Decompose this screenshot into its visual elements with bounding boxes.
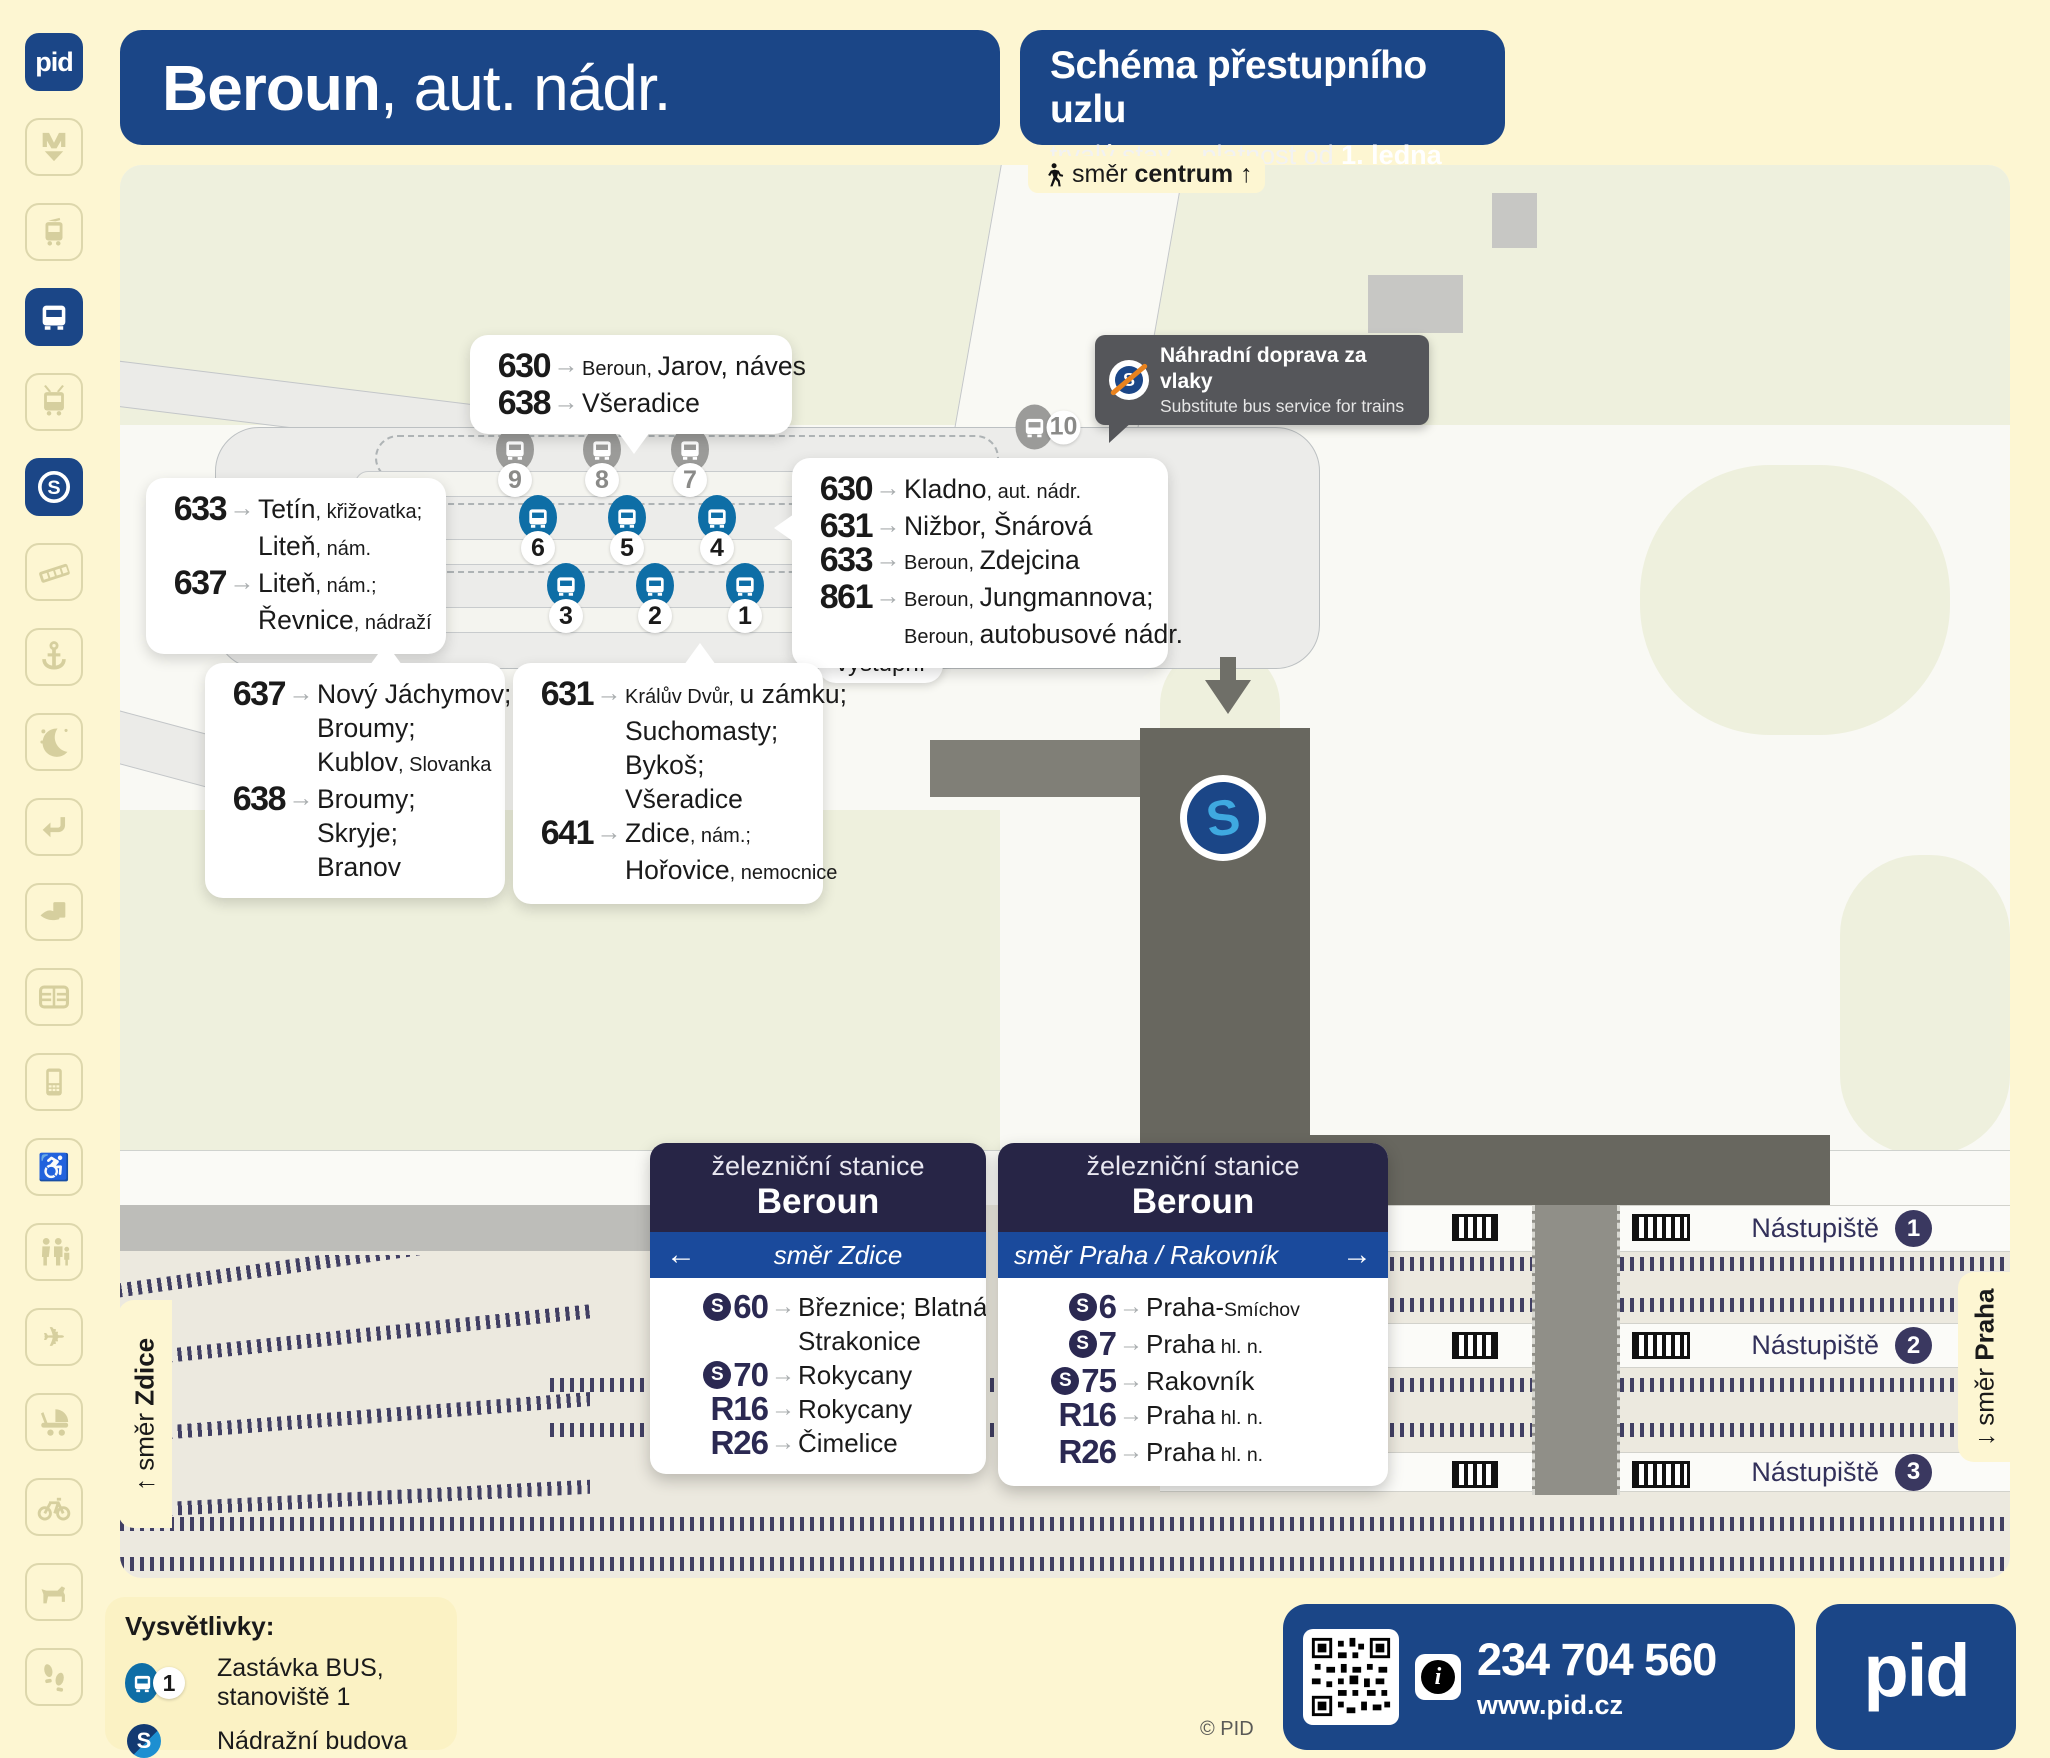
station-name: Beroun: [162, 51, 380, 125]
bus-stop-5: 5: [608, 495, 646, 565]
stairs-icon: [1632, 1214, 1690, 1241]
family-icon[interactable]: [25, 1223, 83, 1281]
bus-stop-4: 4: [698, 495, 736, 565]
s-line-icon: S: [703, 1361, 731, 1389]
direction-praha-tab: ↓ směr Praha: [1958, 1272, 2012, 1462]
legend-title: Vysvětlivky:: [125, 1611, 437, 1642]
railway-track-fan: [120, 1255, 590, 1578]
grass-area: [1840, 855, 2010, 1155]
bus-stop-9: 9: [496, 427, 534, 497]
stairs-icon: [1632, 1461, 1690, 1488]
pid-logo-large: pid: [1864, 1628, 1969, 1727]
train-box-station: Beroun: [1002, 1182, 1384, 1222]
train-route-R16: R16→Praha hl. n.: [1012, 1398, 1374, 1435]
funicular-icon[interactable]: [25, 543, 83, 601]
route-callout-right: 630→Kladno, aut. nádr.631→Nižbor, Šnárov…: [792, 458, 1168, 668]
route-638: 638→Broumy;Skryje;Branov: [223, 782, 487, 884]
train-route-S75: S75→Rakovník: [1012, 1364, 1374, 1398]
train-direction-bar: směr Praha / Rakovník→: [998, 1232, 1388, 1278]
info-phone-number: 234 704 560: [1477, 1634, 1716, 1686]
left-arrow-icon: ←: [666, 1238, 696, 1272]
train-route-S70: S70→Rokycany: [664, 1358, 972, 1392]
station-building-wing: [1310, 1135, 1830, 1208]
bus-stop-2: 2: [636, 563, 674, 633]
walking-person-icon: [1040, 162, 1066, 188]
s-line-icon: S: [1051, 1367, 1079, 1395]
train-box-label: železniční stanice: [654, 1151, 982, 1182]
route-callout-top: 630→Beroun, Jarov, náves638→Všeradice: [470, 335, 792, 434]
qr-code[interactable]: [1303, 1629, 1399, 1725]
route-630: 630→Beroun, Jarov, náves: [488, 349, 774, 386]
legend: Vysvětlivky: 1Zastávka BUS, stanoviště 1…: [105, 1597, 457, 1750]
ferry-icon[interactable]: [25, 628, 83, 686]
route-861: 861→Beroun, Jungmannova;Beroun, autobuso…: [810, 580, 1150, 654]
contact-box: i 234 704 560 www.pid.cz: [1283, 1604, 1795, 1750]
station-s-logo: S: [1180, 775, 1266, 861]
bus-stop-3: 3: [547, 563, 585, 633]
bus-icon[interactable]: [25, 288, 83, 346]
pid-logo[interactable]: pid: [25, 33, 83, 91]
wheelchair-icon[interactable]: ♿: [25, 1138, 83, 1196]
mobile-icon[interactable]: [25, 1053, 83, 1111]
direction-centrum-label: směr centrum ↑: [1028, 156, 1265, 193]
stairs-icon: [1452, 1332, 1498, 1359]
night-icon[interactable]: [25, 713, 83, 771]
route-630: 630→Kladno, aut. nádr.: [810, 472, 1150, 509]
station-building-wing: [930, 740, 1140, 797]
right-arrow-icon: →: [1342, 1238, 1372, 1272]
chip-card-icon[interactable]: [25, 968, 83, 1026]
train-route-S60: S60→Březnice; Blatná;Strakonice: [664, 1290, 972, 1358]
route-638: 638→Všeradice: [488, 386, 774, 420]
s-line-icon: S: [1069, 1330, 1097, 1358]
s-line-icon: S: [703, 1293, 731, 1321]
substitute-service-tooltip: S Náhradní doprava za vlaky Substitute b…: [1095, 335, 1429, 425]
grass-area: [1640, 465, 1950, 735]
platform-number: 2: [1895, 1327, 1932, 1364]
trolleybus-icon[interactable]: [25, 373, 83, 431]
train-direction-bar: ←směr Zdice: [650, 1232, 986, 1278]
route-631: 631→Nižbor, Šnárová: [810, 509, 1150, 543]
svg-text:S: S: [47, 477, 60, 499]
station-schematic-map: S Nástupiště1Nástupiště2Nástupiště3 výst…: [120, 165, 2010, 1578]
walking-icon[interactable]: [25, 1648, 83, 1706]
route-637: 637→Liteň, nám.;Řevnice, nádraží: [164, 566, 428, 640]
stop-number-badge: 1: [153, 1667, 185, 1699]
schema-header: Schéma přestupního uzlu trvalý stav – pl…: [1020, 30, 1505, 145]
s-train-icon[interactable]: S: [25, 458, 83, 516]
s-line-icon: S: [1069, 1293, 1097, 1321]
train-route-R16: R16→Rokycany: [664, 1392, 972, 1426]
copyright: © PID: [1200, 1718, 1254, 1741]
route-callout-bottom-mid: 631→Králův Dvůr, u zámku;Suchomasty;Byko…: [513, 663, 823, 904]
page-title: Beroun, aut. nádr.: [120, 30, 1000, 145]
building: [1368, 275, 1463, 333]
route-callout-bottom-left: 637→Nový Jáchymov;Broumy;Kublov, Slovank…: [205, 663, 505, 898]
tram-icon[interactable]: [25, 203, 83, 261]
metro-icon[interactable]: [25, 118, 83, 176]
route-633: 633→Beroun, Zdejcina: [810, 543, 1150, 580]
schema-title: Schéma přestupního uzlu: [1050, 44, 1505, 132]
bus-stop-7: 7: [671, 427, 709, 497]
platform-label: Nástupiště: [1751, 1330, 1879, 1361]
route-641: 641→Zdice, nám.;Hořovice, nemocnice: [531, 816, 805, 890]
stroller-icon[interactable]: [25, 1393, 83, 1451]
bus-stop-8: 8: [583, 427, 621, 497]
pid-logo-box: pid: [1816, 1604, 2016, 1750]
route-631: 631→Králův Dvůr, u zámku;Suchomasty;Byko…: [531, 677, 805, 816]
train-box-station: Beroun: [654, 1182, 982, 1222]
qr-code-image: [1309, 1635, 1393, 1719]
train-box-label: železniční stanice: [1002, 1151, 1384, 1182]
train-route-R26: R26→Čimelice: [664, 1426, 972, 1460]
bus-stop-10: 10: [1016, 405, 1081, 450]
road: [120, 1205, 690, 1251]
s-train-logo: S: [127, 1724, 161, 1758]
stairs-icon: [1452, 1214, 1498, 1241]
railway-track: [1330, 1298, 2010, 1312]
transfer-icon[interactable]: [25, 798, 83, 856]
stairs-icon: [1452, 1461, 1498, 1488]
stairs-icon: [1632, 1332, 1690, 1359]
railway-track: [1330, 1257, 2010, 1271]
ticket-icon[interactable]: [25, 883, 83, 941]
platform-number: 1: [1895, 1210, 1932, 1247]
train-route-S6: S6→Praha-Smíchov: [1012, 1290, 1374, 1327]
airplane-icon[interactable]: ✈: [25, 1308, 83, 1366]
train-route-S7: S7→Praha hl. n.: [1012, 1327, 1374, 1364]
platform-label: Nástupiště: [1751, 1213, 1879, 1244]
route-callout-left: 633→Tetín, křižovatka;Liteň, nám.637→Lit…: [146, 478, 446, 654]
substitute-service-icon: S: [1109, 360, 1149, 400]
entrance-arrow-head: [1205, 680, 1251, 714]
building: [1492, 193, 1537, 248]
legend-item: 1Zastávka BUS, stanoviště 1: [125, 1654, 437, 1712]
pedestrian-underpass: [1532, 1205, 1620, 1495]
route-633: 633→Tetín, křižovatka;Liteň, nám.: [164, 492, 428, 566]
platform-label: Nástupiště: [1751, 1457, 1879, 1488]
train-station-box-zdice: železniční staniceBeroun←směr ZdiceS60→B…: [650, 1143, 986, 1474]
direction-zdice-tab: ↑ směr Zdice: [118, 1300, 172, 1528]
website-link[interactable]: www.pid.cz: [1477, 1690, 1716, 1721]
bus-stop-1: 1: [726, 563, 764, 633]
dog-icon[interactable]: [25, 1563, 83, 1621]
bus-stop-6: 6: [519, 495, 557, 565]
bicycle-icon[interactable]: [25, 1478, 83, 1536]
route-637: 637→Nový Jáchymov;Broumy;Kublov, Slovank…: [223, 677, 487, 782]
info-icon: i: [1415, 1654, 1461, 1700]
train-route-R26: R26→Praha hl. n.: [1012, 1435, 1374, 1472]
station-suffix: , aut. nádr.: [380, 51, 670, 125]
train-station-box-praha: železniční staniceBerounsměr Praha / Rak…: [998, 1143, 1388, 1486]
legend-item: SNádražní budova: [125, 1724, 437, 1758]
platform-number: 3: [1895, 1454, 1932, 1491]
